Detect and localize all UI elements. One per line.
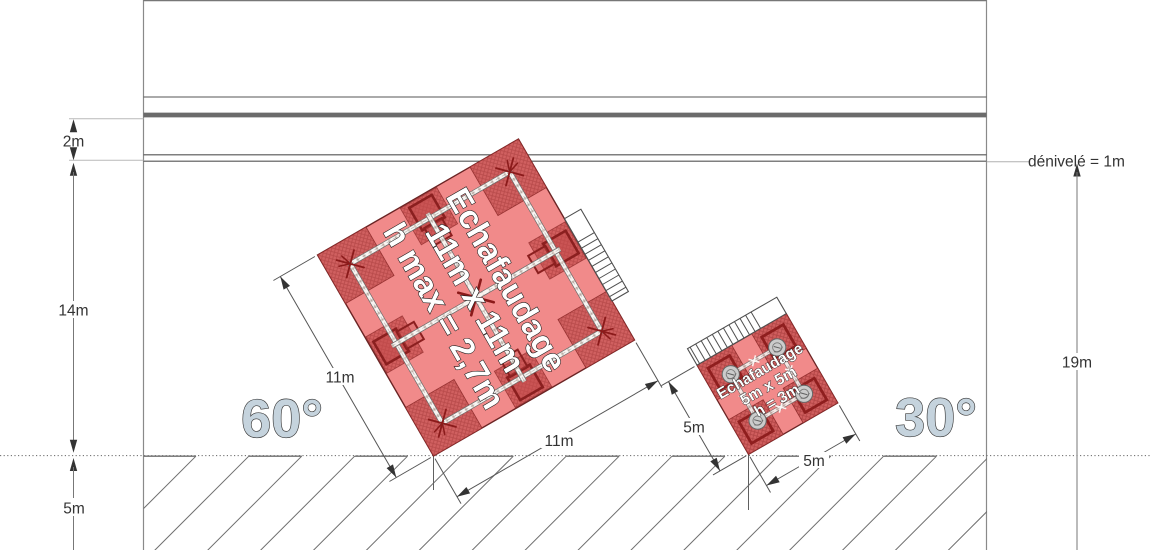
svg-text:dénivelé = 1m: dénivelé = 1m: [1028, 154, 1125, 171]
svg-text:11m: 11m: [325, 370, 354, 387]
svg-text:2m: 2m: [63, 134, 85, 151]
svg-text:5m: 5m: [63, 501, 85, 518]
svg-text:14m: 14m: [58, 303, 88, 320]
svg-text:19m: 19m: [1062, 355, 1092, 372]
svg-text:60°: 60°: [241, 389, 323, 449]
svg-text:30°: 30°: [895, 388, 977, 448]
svg-text:5m: 5m: [683, 420, 705, 437]
svg-text:5m: 5m: [803, 453, 825, 470]
svg-text:11m: 11m: [544, 433, 573, 450]
